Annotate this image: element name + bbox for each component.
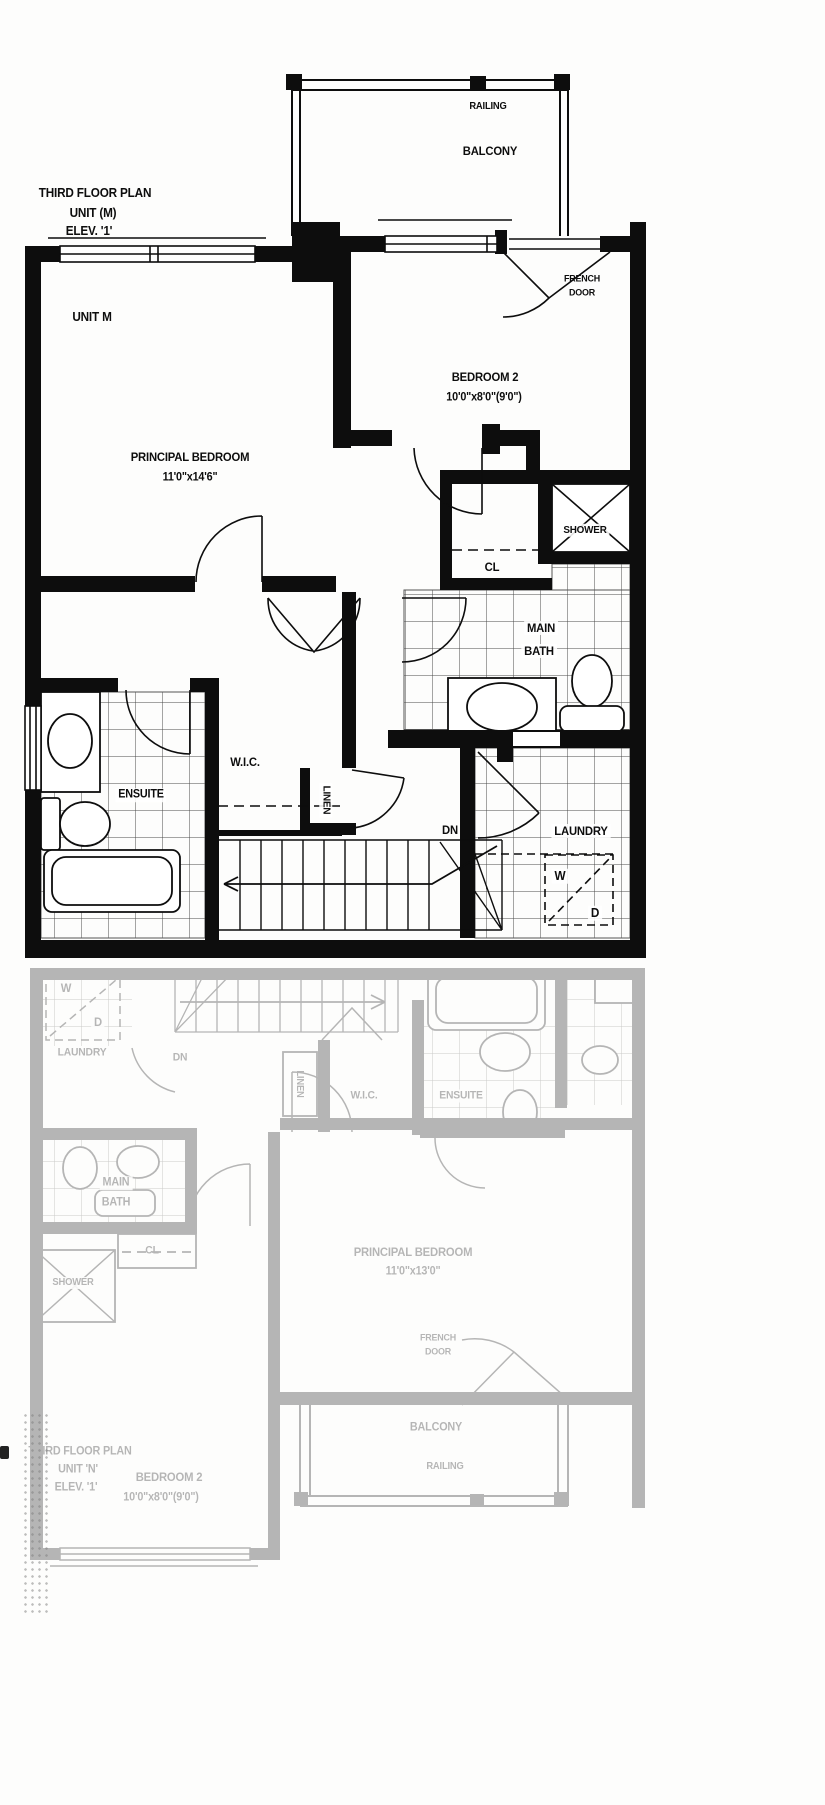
faded-main-bath-label-line1: MAIN xyxy=(100,1176,133,1190)
faded-stairs xyxy=(175,972,398,1032)
faded-french-door-label-line2: DOOR xyxy=(425,1347,451,1357)
faded-dryer-label: D xyxy=(91,1015,105,1029)
faded-bedroom2-dims-label: 10'0"x8'0"(9'0") xyxy=(123,1492,198,1504)
faded-down-label: DN xyxy=(173,1053,188,1064)
faded-linen-label: LINEN xyxy=(294,1070,304,1097)
faded-ensuite-label: ENSUITE xyxy=(436,1090,485,1103)
faded-french-door-label-line1: FRENCH xyxy=(420,1333,456,1343)
faded-plan-title-line3: ELEV. '1' xyxy=(55,1482,98,1494)
faded-wic-label: W.I.C. xyxy=(350,1091,377,1102)
faded-mirror-plan: LAUNDRY W D DN LINEN W.I.C. ENSUITE MAIN… xyxy=(0,0,825,1805)
faded-windows xyxy=(50,1396,460,1566)
faded-main-bath-label-line2: BATH xyxy=(99,1196,133,1210)
faded-washer-label: W xyxy=(58,981,74,995)
faded-plan-drawing xyxy=(0,0,825,1805)
faded-plan-title-line2: UNIT 'N' xyxy=(58,1464,98,1476)
faded-railing-label: RAILING xyxy=(426,1462,463,1472)
faded-balcony-label: BALCONY xyxy=(410,1422,462,1434)
scan-artifact-dotted-strip xyxy=(22,1412,50,1617)
faded-bedroom2-name-label: BEDROOM 2 xyxy=(136,1471,203,1483)
floorplan-page: THIRD FLOOR PLAN UNIT (M) ELEV. '1' RAIL… xyxy=(0,0,825,1805)
faded-closet-label: CL xyxy=(145,1246,158,1257)
faded-shower-label: SHOWER xyxy=(50,1277,97,1289)
faded-balcony-railing xyxy=(294,1405,568,1506)
faded-principal-name-label: PRINCIPAL BEDROOM xyxy=(354,1246,473,1258)
faded-principal-dims-label: 11'0"x13'0" xyxy=(386,1266,441,1278)
faded-laundry-label: LAUNDRY xyxy=(55,1047,109,1060)
scan-artifact-mark xyxy=(0,1446,9,1459)
